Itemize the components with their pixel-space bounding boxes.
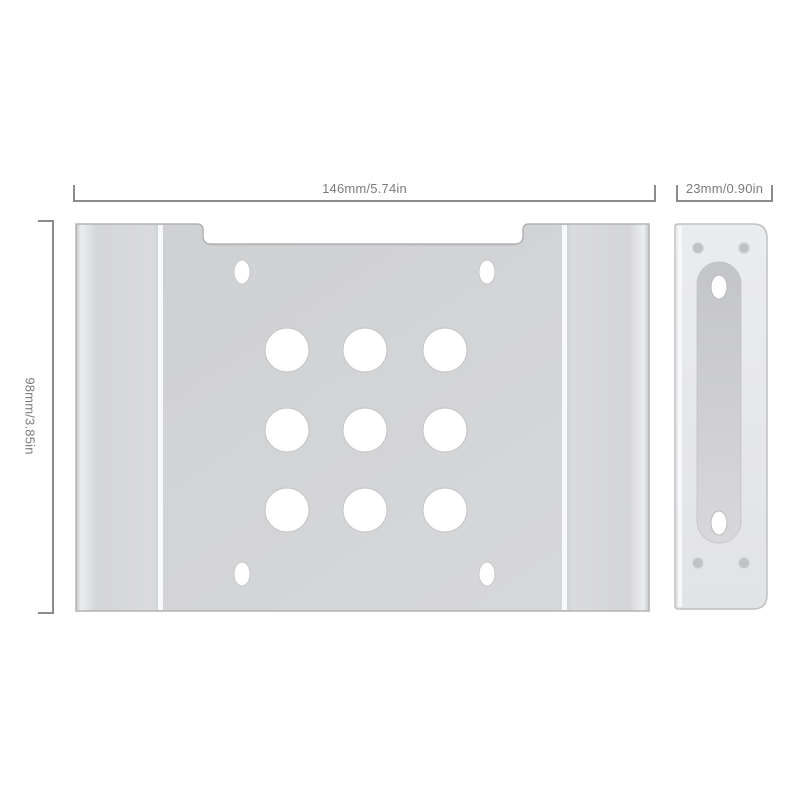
side-fold-highlight xyxy=(678,226,682,607)
product-dimension-diagram: 146mm/5.74in 23mm/0.90in 98mm/3.85in xyxy=(0,0,800,800)
front-left-flange xyxy=(76,224,160,611)
corner-slot xyxy=(234,260,250,284)
mounting-hole xyxy=(423,408,467,452)
corner-slot xyxy=(479,260,495,284)
dimension-depth-label: 23mm/0.90in xyxy=(678,181,771,196)
side-channel-recess xyxy=(697,262,741,543)
side-screw-dimple xyxy=(739,243,750,254)
dimension-width-label: 146mm/5.74in xyxy=(75,181,654,196)
mounting-hole xyxy=(423,328,467,372)
mounting-hole xyxy=(423,488,467,532)
corner-slot xyxy=(479,562,495,586)
mounting-hole xyxy=(265,328,309,372)
corner-slot xyxy=(234,562,250,586)
side-screw-dimple xyxy=(739,558,750,569)
dimension-width-line: 146mm/5.74in xyxy=(73,185,656,202)
side-screw-dimple xyxy=(693,558,704,569)
front-large-holes xyxy=(265,328,467,532)
mounting-hole xyxy=(343,488,387,532)
dimension-height-label: 98mm/3.85in xyxy=(23,377,38,454)
side-slot-hole xyxy=(711,511,727,535)
mounting-hole xyxy=(343,408,387,452)
bracket-front-view xyxy=(75,223,650,612)
mounting-hole xyxy=(265,408,309,452)
mounting-hole xyxy=(343,328,387,372)
front-right-flange xyxy=(565,224,649,611)
dimension-height-line xyxy=(38,220,54,614)
front-fold-highlight-right xyxy=(562,225,567,610)
mounting-hole xyxy=(265,488,309,532)
side-slot-hole xyxy=(711,275,727,299)
side-screw-dimple xyxy=(693,243,704,254)
bracket-side-view xyxy=(674,223,768,610)
dimension-depth-line: 23mm/0.90in xyxy=(676,185,773,202)
front-fold-highlight-left xyxy=(158,225,163,610)
